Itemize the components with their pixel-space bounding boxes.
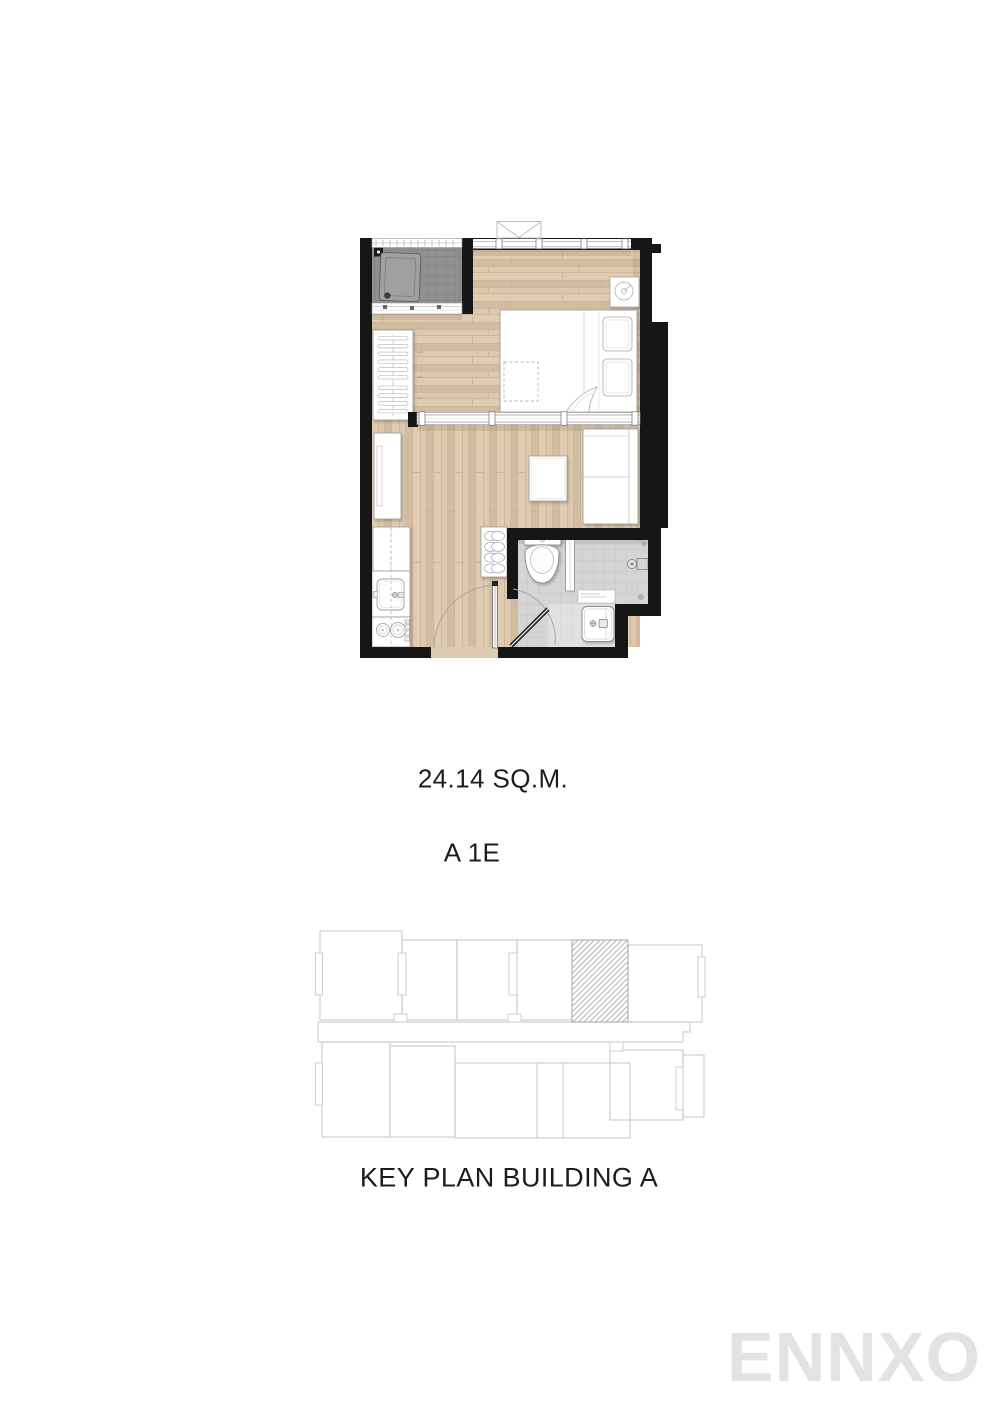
watermark: ENNXO bbox=[727, 1322, 981, 1392]
bedroom-glass-partition bbox=[417, 412, 640, 425]
tv-console bbox=[374, 433, 401, 519]
shoe-shelf bbox=[481, 527, 507, 577]
shower-head bbox=[627, 559, 648, 570]
faucet bbox=[392, 592, 397, 597]
bedroom-window bbox=[473, 239, 631, 249]
highlighted-unit bbox=[572, 940, 628, 1022]
unit-floor-plan bbox=[353, 216, 671, 664]
balcony-sliding-door bbox=[372, 303, 462, 314]
bed bbox=[500, 310, 637, 412]
refrigerator bbox=[373, 527, 410, 571]
floor-plan-page: 24.14 SQ.M. A 1E bbox=[0, 0, 1000, 1416]
coffee-table bbox=[529, 456, 567, 501]
wardrobe bbox=[373, 330, 413, 420]
balcony-railing bbox=[372, 239, 462, 248]
area-label: 24.14 SQ.M. bbox=[418, 764, 568, 795]
balcony bbox=[372, 248, 462, 304]
tv bbox=[377, 446, 382, 506]
unit-name-label: A 1E bbox=[444, 838, 501, 869]
window-stubs bbox=[316, 953, 706, 1110]
ac-compressor-unit bbox=[379, 252, 421, 301]
bathroom-basin bbox=[582, 607, 614, 642]
key-plan bbox=[300, 922, 712, 1146]
sofa bbox=[583, 429, 638, 524]
vent-marker bbox=[497, 222, 541, 239]
key-plan-title: KEY PLAN BUILDING A bbox=[360, 1163, 658, 1194]
bedside-unit bbox=[610, 277, 639, 307]
